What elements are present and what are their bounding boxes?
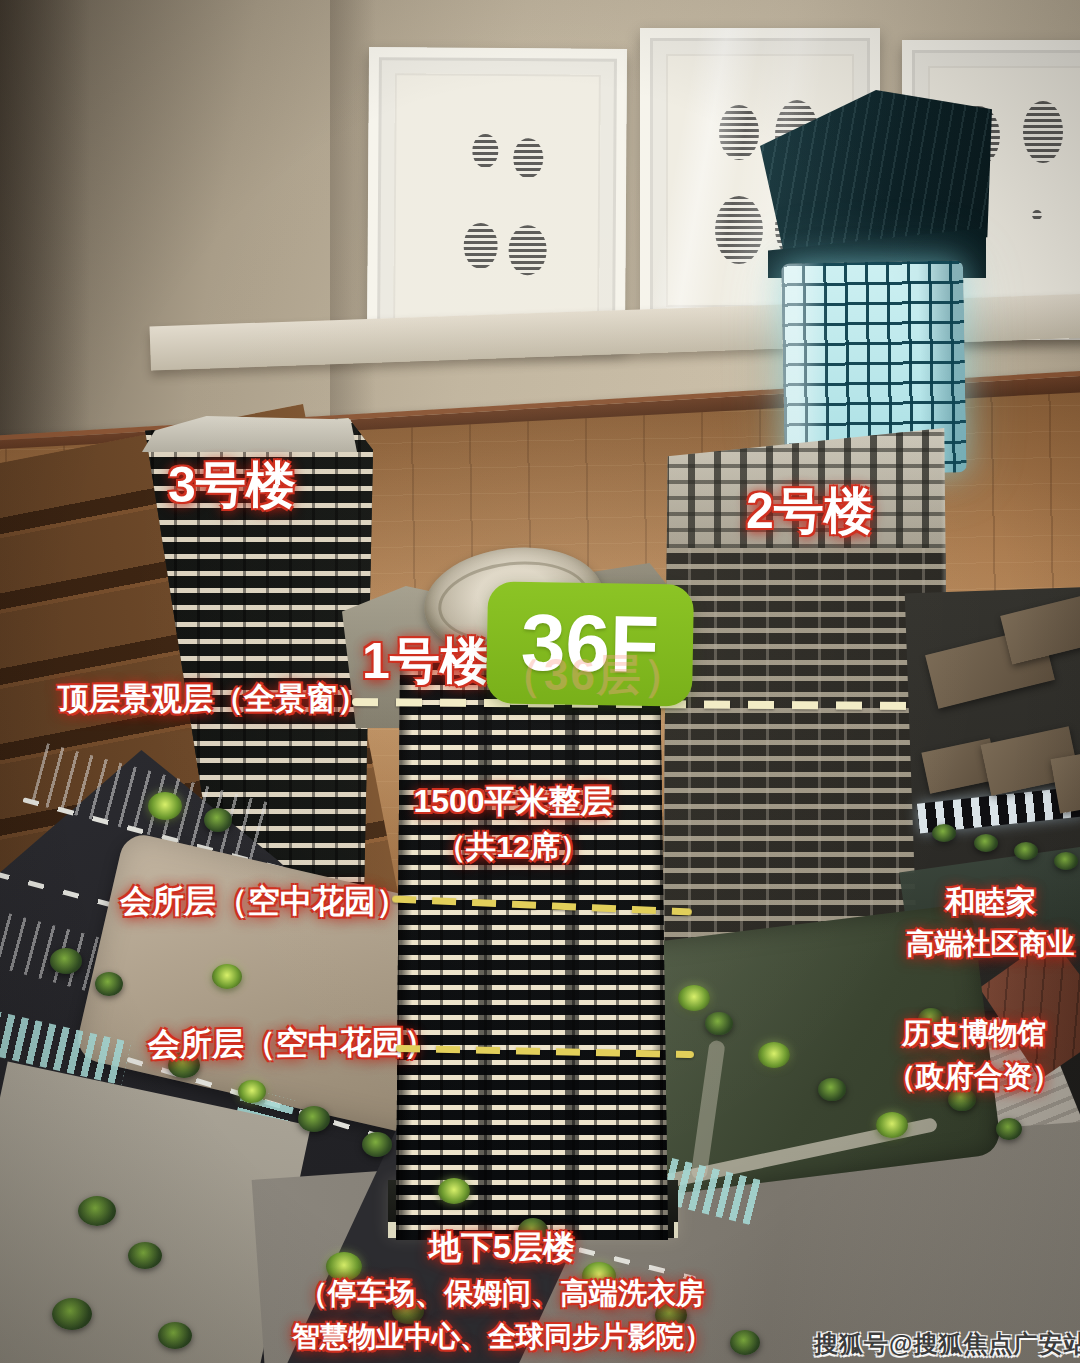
label-commercial: 和睦家 高端社区商业: [898, 882, 1080, 963]
label-basement: 地下5层楼 （停车场、保姆间、高端洗衣房 智慧物业中心、全球同步片影院）: [290, 1226, 714, 1356]
tree: [974, 834, 998, 852]
tree: [1054, 852, 1078, 870]
label-top-floor: 顶层景观层（全景窗）: [58, 678, 368, 720]
label-museum-line2: （政府合资）: [884, 1057, 1064, 1097]
sales-model-photo: 3号楼 2号楼 1号楼 36F （36层） 顶层景观层（全景窗） 1500平米整…: [0, 0, 1080, 1363]
label-full-floor-line1: 1500平米整层: [388, 780, 638, 824]
label-commercial-line2: 高端社区商业: [898, 925, 1080, 963]
tree: [95, 972, 123, 996]
art-oval: [719, 105, 759, 160]
tree: [932, 824, 956, 842]
floors-ghost-text: （36层）: [498, 646, 689, 705]
label-museum: 历史博物馆 （政府合资）: [884, 1014, 1064, 1097]
art-oval: [1032, 210, 1042, 220]
tree: [128, 1242, 162, 1269]
tree: [996, 1118, 1022, 1140]
tree: [818, 1078, 846, 1101]
label-basement-line3: 智慧物业中心、全球同步片影院）: [290, 1318, 714, 1356]
picture-frame: [367, 47, 627, 349]
facade-recess: [478, 655, 492, 1240]
tree: [212, 964, 242, 989]
tree: [678, 985, 710, 1011]
label-club-floor-lower: 会所层（空中花园）: [148, 1021, 436, 1068]
watermark: 搜狐号@搜狐焦点广安站: [814, 1328, 1080, 1360]
tree: [204, 808, 232, 832]
tree: [362, 1132, 392, 1157]
label-building-1: 1号楼: [362, 628, 490, 695]
frame-mat: [393, 73, 601, 322]
facade-recess: [565, 655, 579, 1240]
label-building-2: 2号楼: [746, 478, 874, 545]
tree: [148, 792, 182, 820]
art-oval: [472, 133, 498, 167]
tree: [758, 1042, 790, 1068]
tree: [298, 1106, 330, 1132]
tree: [78, 1196, 116, 1226]
tree: [705, 1012, 733, 1035]
label-full-floor-line2: （共12席）: [388, 827, 638, 868]
tree: [1014, 842, 1038, 860]
tree: [238, 1080, 266, 1103]
tree: [876, 1112, 908, 1138]
tree: [730, 1330, 760, 1355]
tree: [50, 948, 82, 974]
label-full-floor: 1500平米整层 （共12席）: [388, 780, 638, 868]
tree: [158, 1322, 192, 1349]
label-commercial-line1: 和睦家: [898, 882, 1080, 923]
label-basement-line1: 地下5层楼: [290, 1226, 714, 1270]
label-museum-line1: 历史博物馆: [884, 1014, 1064, 1054]
art-oval: [509, 225, 547, 275]
tower-1-model: [396, 655, 668, 1240]
tree: [52, 1298, 92, 1330]
art-oval: [464, 223, 498, 269]
tree: [438, 1178, 470, 1204]
art-oval: [715, 196, 763, 264]
label-building-3: 3号楼: [168, 452, 296, 519]
label-club-floor-upper: 会所层（空中花园）: [120, 880, 408, 924]
art-oval: [1023, 101, 1063, 163]
art-oval: [514, 139, 544, 179]
label-basement-line2: （停车场、保姆间、高端洗衣房: [290, 1274, 714, 1314]
